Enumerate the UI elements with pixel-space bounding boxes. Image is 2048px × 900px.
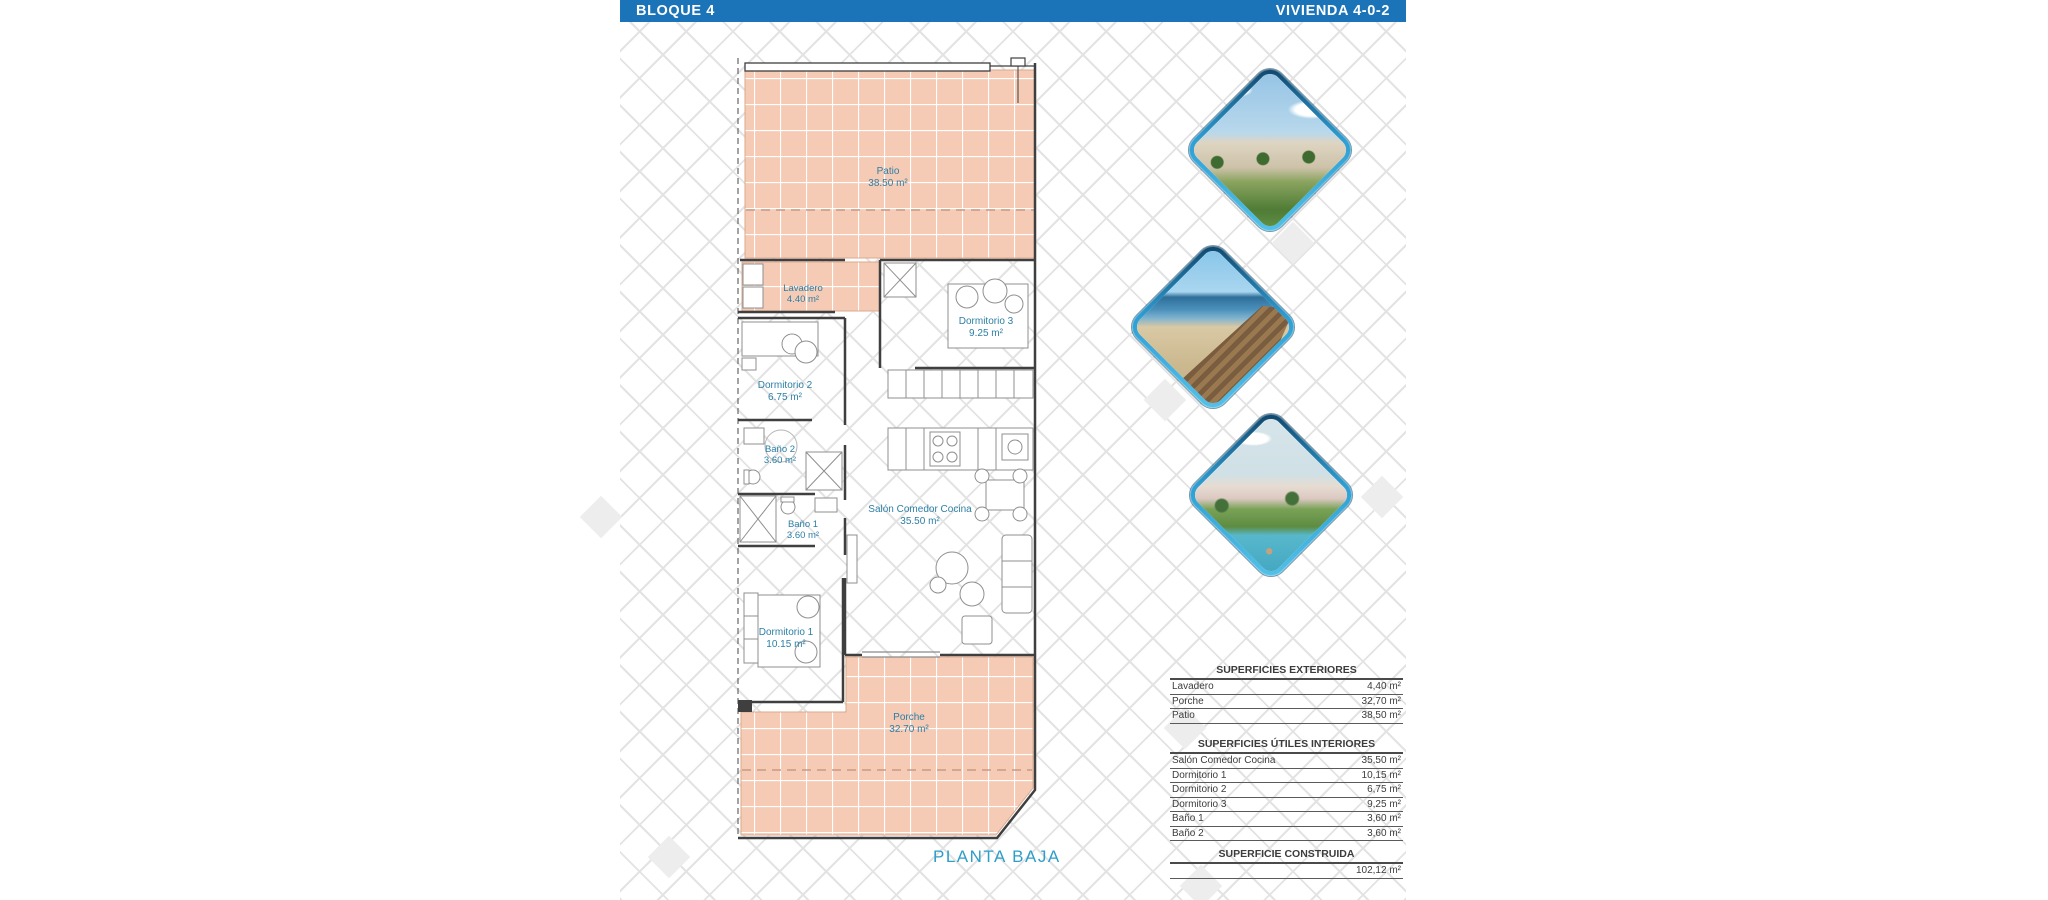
label-dormitorio2: Dormitorio 2 [758,380,813,391]
row-label: Dormitorio 3 [1172,799,1226,811]
table-row: Dormitorio 3 9,25 m² [1170,798,1403,813]
row-label: Dormitorio 2 [1172,784,1226,796]
row-label: Baño 2 [1172,828,1204,840]
row-label: Salón Comedor Cocina [1172,755,1275,767]
row-label: Patio [1172,710,1195,722]
row-label: Porche [1172,696,1204,708]
unit-title: VIVIENDA 4-0-2 [1276,3,1390,19]
porch-wall-stub [738,700,752,712]
row-value: 6,75 m² [1367,784,1401,796]
label-dormitorio3-area: 9.25 m² [969,328,1004,339]
label-dormitorio2-area: 6.75 m² [768,392,803,403]
table-title: SUPERFICIE CONSTRUIDA [1170,848,1403,864]
lattice-filled-cell [1361,476,1403,518]
row-value: 38,50 m² [1362,710,1401,722]
label-lavadero-area: 4.40 m² [787,294,819,305]
label-bano1-area: 3.60 m² [787,530,819,541]
floor-title: PLANTA BAJA [933,847,1061,867]
header-bar: BLOQUE 4 VIVIENDA 4-0-2 [620,0,1406,22]
label-salon: Salón Comedor Cocina [868,504,972,515]
label-patio: Patio [877,166,900,177]
table-row: Patio 38,50 m² [1170,709,1403,724]
label-bano2-area: 3.60 m² [764,455,796,466]
label-bano1: Baño 1 [788,519,818,530]
label-porche-area: 32.70 m² [889,724,929,735]
porch-threshold [862,652,940,657]
label-lavadero: Lavadero [783,283,823,294]
table-superficie-construida: SUPERFICIE CONSTRUIDA 102,12 m² [1170,848,1403,879]
table-row: 102,12 m² [1170,864,1403,879]
label-dormitorio1: Dormitorio 1 [759,627,814,638]
table-row: Dormitorio 1 10,15 m² [1170,769,1403,784]
block-title: BLOQUE 4 [636,3,715,19]
row-value: 4,40 m² [1367,681,1401,693]
row-value: 32,70 m² [1362,696,1401,708]
lattice-filled-cell [580,496,622,538]
table-row: Porche 32,70 m² [1170,695,1403,710]
row-label: Lavadero [1172,681,1214,693]
label-porche: Porche [893,712,925,723]
table-superficies-interiores: SUPERFICIES ÚTILES INTERIORES Salón Come… [1170,738,1403,841]
row-value: 3,60 m² [1367,828,1401,840]
row-label: Baño 1 [1172,813,1204,825]
lattice-filled-cell [648,836,690,878]
row-value: 9,25 m² [1367,799,1401,811]
row-value: 102,12 m² [1356,865,1401,877]
table-row: Baño 2 3,60 m² [1170,827,1403,842]
table-row: Salón Comedor Cocina 35,50 m² [1170,754,1403,769]
label-dormitorio3: Dormitorio 3 [959,316,1014,327]
table-title: SUPERFICIES EXTERIORES [1170,664,1403,680]
row-value: 35,50 m² [1362,755,1401,767]
floor-plan: Patio 38.50 m² Lavadero 4.40 m² Dormitor… [730,40,1050,885]
label-salon-area: 35.50 m² [900,516,940,527]
lattice-filled-cell [1144,379,1186,421]
table-row: Baño 1 3,60 m² [1170,812,1403,827]
table-superficies-exteriores: SUPERFICIES EXTERIORES Lavadero 4,40 m² … [1170,664,1403,724]
row-label: Dormitorio 1 [1172,770,1226,782]
row-value: 3,60 m² [1367,813,1401,825]
plan-sheet: BLOQUE 4 VIVIENDA 4-0-2 [0,0,2048,900]
patio-floor [745,70,1035,258]
label-bano2: Baño 2 [765,444,795,455]
table-row: Lavadero 4,40 m² [1170,680,1403,695]
label-dormitorio1-area: 10.15 m² [766,639,806,650]
table-title: SUPERFICIES ÚTILES INTERIORES [1170,738,1403,754]
table-row: Dormitorio 2 6,75 m² [1170,783,1403,798]
label-patio-area: 38.50 m² [868,178,908,189]
porche-floor [741,657,1033,835]
row-value: 10,15 m² [1362,770,1401,782]
